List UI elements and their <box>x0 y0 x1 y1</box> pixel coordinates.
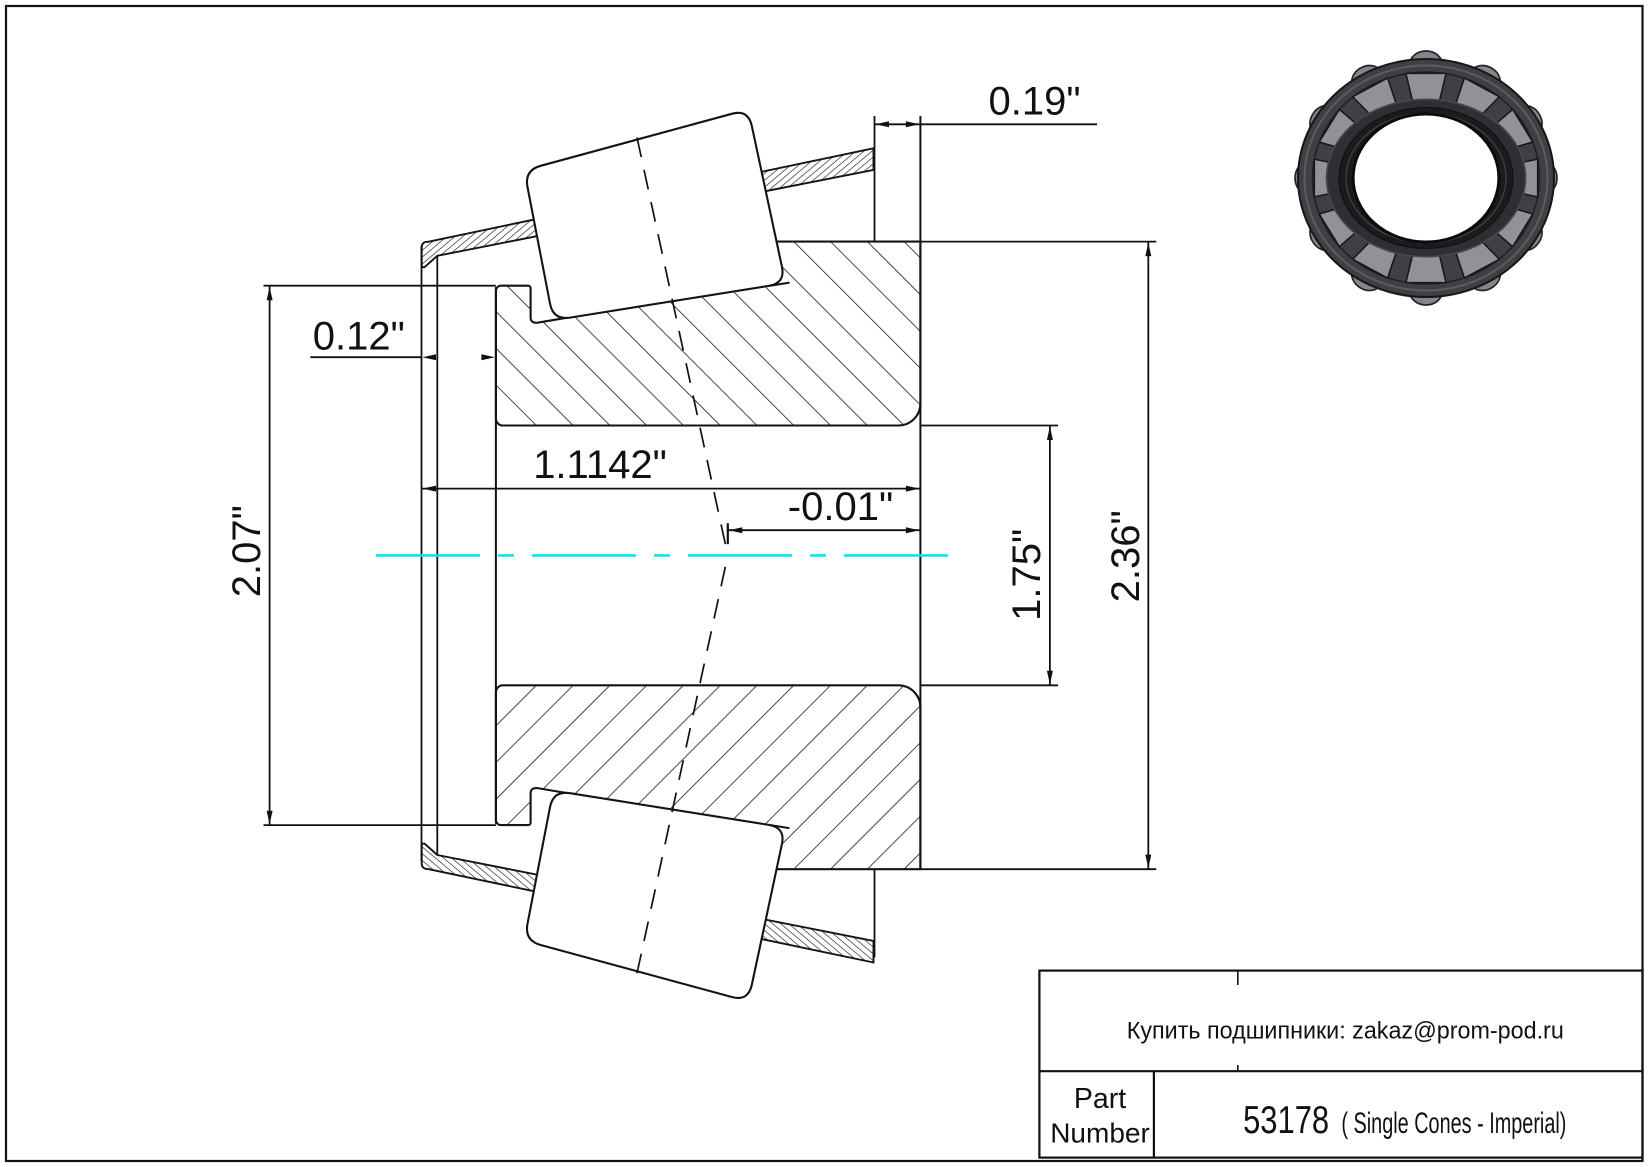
svg-text:( Single Cones - Imperial): ( Single Cones - Imperial) <box>1341 1107 1566 1140</box>
svg-text:-0.01": -0.01" <box>788 485 893 529</box>
svg-text:53178: 53178 <box>1243 1099 1329 1142</box>
svg-text:2.36": 2.36" <box>1104 510 1148 602</box>
svg-text:Number: Number <box>1050 1117 1150 1148</box>
svg-text:1.75": 1.75" <box>1005 529 1049 621</box>
svg-text:0.19": 0.19" <box>989 79 1081 123</box>
svg-text:2.07": 2.07" <box>225 505 269 597</box>
svg-text:Купить подшипники: zakaz@prom-: Купить подшипники: zakaz@prom-pod.ru <box>1127 1018 1564 1045</box>
svg-text:0.12": 0.12" <box>313 315 405 359</box>
svg-text:Part: Part <box>1074 1083 1126 1115</box>
svg-text:1.1142": 1.1142" <box>533 443 667 487</box>
